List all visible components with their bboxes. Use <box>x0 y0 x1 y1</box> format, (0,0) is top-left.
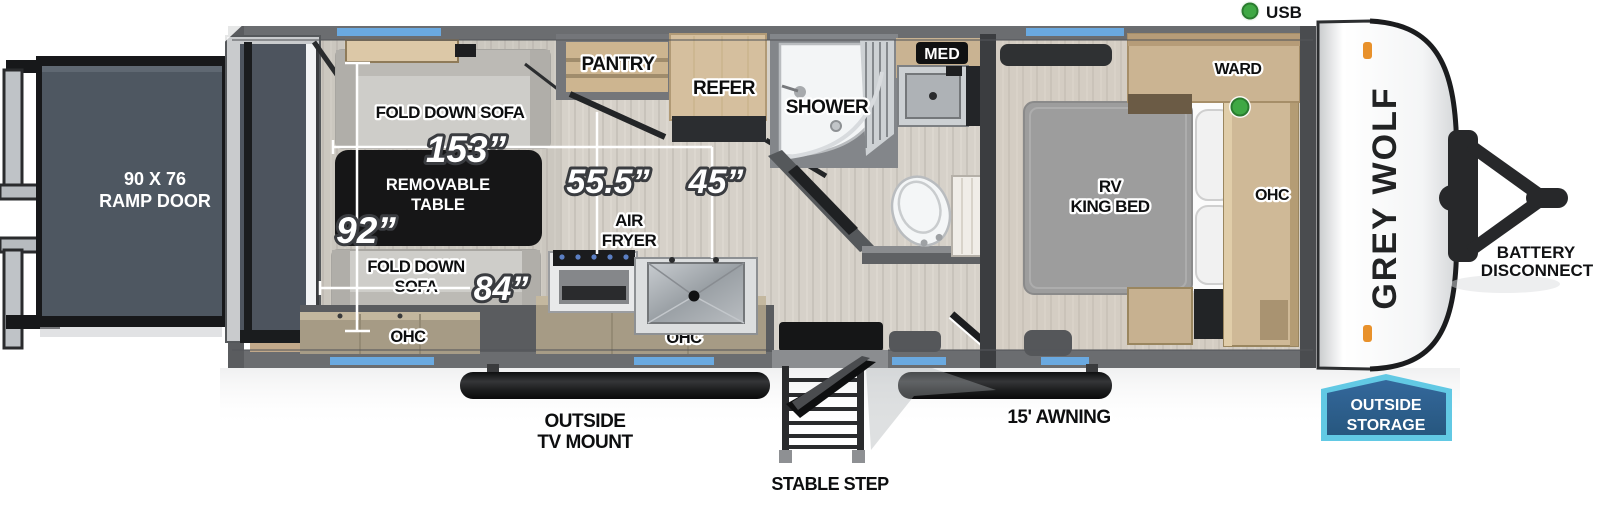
svg-text:PANTRY: PANTRY <box>582 54 656 75</box>
svg-text:153”: 153” <box>426 129 507 170</box>
svg-text:84”: 84” <box>474 270 529 308</box>
svg-text:STABLE STEP: STABLE STEP <box>771 474 889 494</box>
svg-text:WARD: WARD <box>1215 61 1262 78</box>
svg-text:OUTSIDE: OUTSIDE <box>545 411 626 432</box>
svg-text:STORAGE: STORAGE <box>1347 417 1426 434</box>
svg-text:RV: RV <box>1099 177 1122 196</box>
svg-text:FRYER: FRYER <box>602 231 657 250</box>
svg-text:DISCONNECT: DISCONNECT <box>1481 261 1594 280</box>
svg-text:OHC: OHC <box>390 328 426 346</box>
svg-text:GREY WOLF: GREY WOLF <box>1366 86 1404 309</box>
svg-text:OHC: OHC <box>1255 187 1290 204</box>
svg-text:RAMP DOOR: RAMP DOOR <box>99 191 211 211</box>
svg-text:FOLD DOWN SOFA: FOLD DOWN SOFA <box>376 103 525 122</box>
svg-text:REFER: REFER <box>693 78 756 99</box>
svg-text:55.5”: 55.5” <box>566 163 649 201</box>
svg-text:90 X 76: 90 X 76 <box>124 169 186 189</box>
svg-text:92”: 92” <box>336 210 396 251</box>
svg-text:BATTERY: BATTERY <box>1497 243 1576 262</box>
svg-text:15' AWNING: 15' AWNING <box>1007 407 1110 428</box>
svg-text:MED: MED <box>924 46 960 63</box>
svg-text:USB: USB <box>1266 3 1302 22</box>
svg-text:TABLE: TABLE <box>411 196 465 214</box>
svg-text:SHOWER: SHOWER <box>786 97 869 118</box>
svg-text:REMOVABLE: REMOVABLE <box>386 176 490 194</box>
svg-text:TV MOUNT: TV MOUNT <box>537 432 633 453</box>
svg-text:AIR: AIR <box>615 211 643 230</box>
svg-text:FOLD DOWN: FOLD DOWN <box>367 258 464 276</box>
svg-text:OUTSIDE: OUTSIDE <box>1350 397 1421 414</box>
svg-text:KING BED: KING BED <box>1070 197 1149 216</box>
svg-text:45”: 45” <box>688 163 744 201</box>
